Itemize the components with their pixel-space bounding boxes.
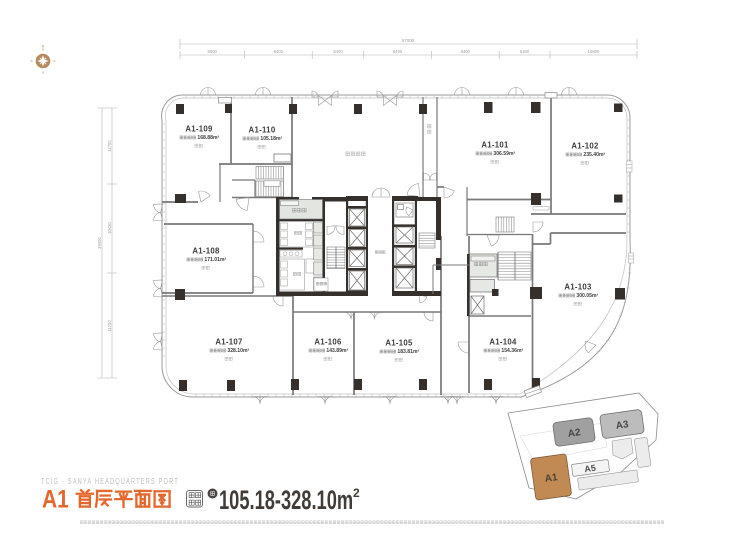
- svg-text:328.10m²: 328.10m²: [227, 348, 249, 354]
- svg-text:171.01m²: 171.01m²: [204, 257, 226, 263]
- svg-text:183.81m²: 183.81m²: [397, 349, 419, 355]
- svg-text:168.88m²: 168.88m²: [197, 135, 219, 141]
- svg-text:235.40m²: 235.40m²: [583, 152, 605, 158]
- svg-text:8400: 8400: [461, 49, 471, 54]
- svg-text:10800: 10800: [588, 49, 600, 54]
- svg-text:2: 2: [353, 486, 360, 500]
- svg-text:105.18-328.10m: 105.18-328.10m: [219, 485, 353, 515]
- svg-text:A1-106: A1-106: [314, 338, 342, 347]
- svg-text:6300: 6300: [520, 49, 530, 54]
- svg-text:A5: A5: [584, 463, 597, 475]
- svg-text:8400: 8400: [274, 49, 284, 54]
- svg-text:306.59m²: 306.59m²: [493, 151, 515, 157]
- svg-text:A1-108: A1-108: [192, 247, 220, 256]
- svg-text:A1-107: A1-107: [215, 338, 242, 347]
- svg-text:300.05m²: 300.05m²: [576, 293, 598, 299]
- svg-text:57000: 57000: [402, 38, 415, 43]
- svg-text:A1-109: A1-109: [185, 125, 213, 134]
- svg-text:A1-102: A1-102: [571, 142, 599, 151]
- svg-text:A1: A1: [42, 485, 69, 513]
- svg-text:A1-105: A1-105: [385, 339, 413, 348]
- svg-text:8000: 8000: [208, 49, 218, 54]
- svg-text:10430: 10430: [107, 222, 112, 234]
- svg-text:143.89m²: 143.89m²: [326, 348, 348, 354]
- svg-text:6400: 6400: [333, 49, 343, 54]
- svg-text:A1-104: A1-104: [489, 338, 517, 347]
- svg-text:A1-101: A1-101: [481, 141, 509, 150]
- svg-text:39000: 39000: [97, 237, 102, 249]
- svg-text:11700: 11700: [107, 320, 112, 332]
- svg-text:154.36m²: 154.36m²: [501, 348, 523, 354]
- svg-text:A1-110: A1-110: [249, 126, 276, 135]
- svg-text:105.18m²: 105.18m²: [260, 136, 282, 142]
- svg-text:A1: A1: [544, 472, 559, 485]
- svg-text:A3: A3: [615, 419, 630, 432]
- svg-text:11700: 11700: [107, 140, 112, 152]
- svg-text:8400: 8400: [393, 49, 403, 54]
- svg-text:A2: A2: [567, 427, 582, 440]
- svg-text:A1-103: A1-103: [564, 283, 592, 292]
